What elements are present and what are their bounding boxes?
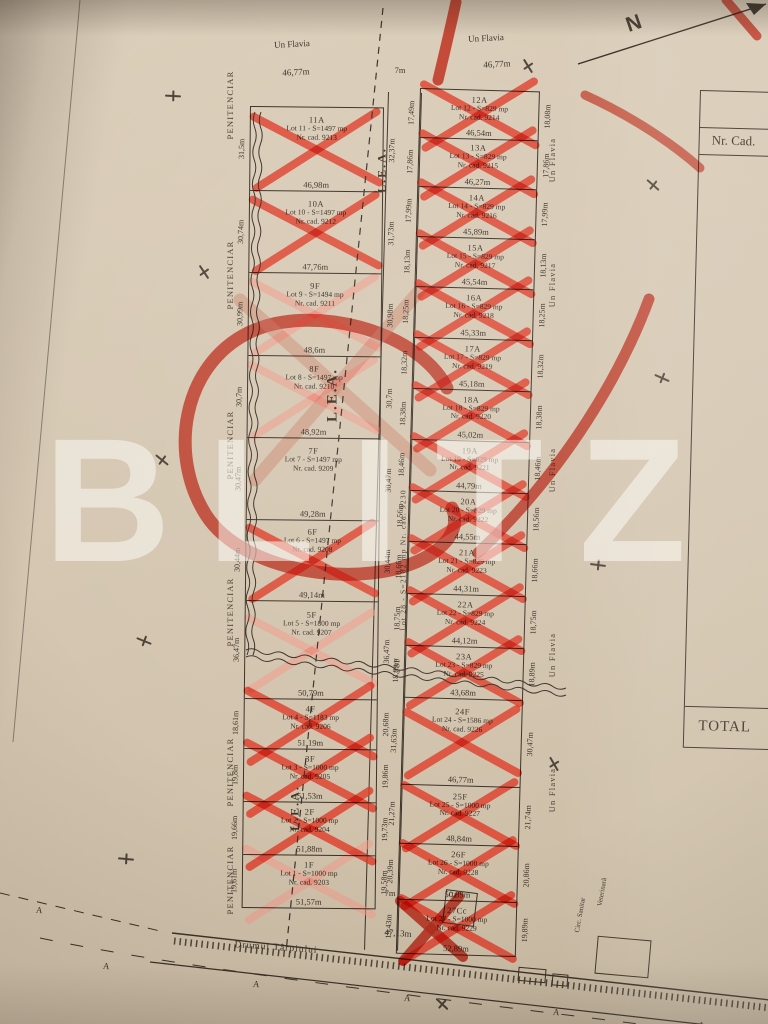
power-line-label: L.E.A. bbox=[325, 368, 342, 422]
street-label-un-flavia: Un Flavia bbox=[274, 38, 310, 50]
lot-cadastral-number: Nr. cad. 9203 bbox=[243, 878, 375, 888]
lot-cadastral-number: Nr. cad. 9208 bbox=[246, 545, 378, 555]
building-veterinary bbox=[594, 936, 651, 979]
lot-side-length-left: 21,27m bbox=[387, 801, 397, 825]
table-body bbox=[685, 155, 768, 709]
lot-side-length-left: 18,61m bbox=[231, 711, 240, 735]
building-c1: C1 bbox=[442, 889, 478, 927]
lot-side-length-right: 31,73m bbox=[386, 221, 395, 245]
lot-cadastral-number: Nr. cad. 9222 bbox=[409, 513, 527, 525]
lot-parcel: 30,99m 9F Lot 9 - S=1494 mp Nr. cad. 921… bbox=[248, 273, 381, 357]
cadastral-side-table: Nr. Cad. TOTAL bbox=[683, 90, 768, 751]
lot-cadastral-number: Nr. cad. 9212 bbox=[250, 217, 382, 227]
lot-frontage-length: 48,6m bbox=[248, 344, 380, 355]
lot-text-block: 14A Lot 14 - S=829 mp Nr. cad. 9216 bbox=[417, 191, 536, 222]
street-label-un-flavia: Un Flavia bbox=[468, 32, 504, 44]
lot-side-length-right: 18,89m bbox=[527, 663, 537, 687]
survey-marker-icon bbox=[194, 262, 214, 282]
building-c1-label: C1 bbox=[448, 891, 457, 900]
lot-parcel: 18,89m 23A Lot 23 - S=829 mp Nr. cad. 92… bbox=[404, 646, 523, 702]
lot-text-block: 15A Lot 15 - S=829 mp Nr. cad. 9217 bbox=[416, 241, 535, 272]
lot-cadastral-number: Nr. cad. 9205 bbox=[244, 772, 376, 782]
lot-parcel: 30,44m 6F Lot 6 - S=1497 mp Nr. cad. 920… bbox=[246, 520, 379, 603]
road-lot-designation: 28F bbox=[393, 657, 402, 673]
lot-cadastral-number: Nr. cad. 9209 bbox=[247, 464, 379, 474]
road-width-label: 7m bbox=[385, 888, 396, 898]
lot-cadastral-number: Nr. cad. 9207 bbox=[245, 628, 377, 638]
lot-side-length-right: 18,75m bbox=[528, 610, 538, 634]
lot-side-length-right: 30,44m bbox=[383, 549, 392, 573]
lot-text-block: 24F Lot 24 - S=1586 mp Nr. cad. 9226 bbox=[403, 705, 522, 736]
lot-text-block: 19A Lot 19 - S=829 mp Nr. cad. 9221 bbox=[410, 443, 529, 474]
lot-text-block: 4F Lot 4 - S=1183 mp Nr. cad. 9206 bbox=[244, 703, 376, 732]
lot-cadastral-number: Nr. cad. 9216 bbox=[417, 210, 535, 222]
lot-cadastral-number: Nr. cad. 9213 bbox=[251, 133, 383, 143]
lot-cadastral-number: Nr. cad. 9220 bbox=[412, 411, 530, 423]
lot-text-block: 9F Lot 9 - S=1494 mp Nr. cad. 9211 bbox=[249, 280, 381, 309]
lot-frontage-length: 48,92m bbox=[248, 426, 380, 437]
survey-marker-icon bbox=[652, 368, 671, 387]
lot-cadastral-number: Nr. cad. 9217 bbox=[416, 260, 534, 272]
lot-text-block: 16A Lot 16 - S=829 mp Nr. cad. 9218 bbox=[415, 291, 534, 322]
road-lot-label: Lot 28 - S=2182 mp Nr. cad. 9230 bbox=[399, 489, 408, 631]
lot-frontage-length: 47,76m bbox=[249, 261, 381, 272]
table-empty-row bbox=[700, 90, 768, 131]
lot-cadastral-number: Nr. cad. 9221 bbox=[410, 462, 528, 474]
lot-side-length-left: 17,99m bbox=[404, 199, 414, 223]
boundary-a-mark: A bbox=[403, 993, 411, 1004]
lot-side-length-left: 19,66m bbox=[230, 816, 239, 840]
lot-cadastral-number: Nr. cad. 9214 bbox=[420, 112, 538, 124]
lot-cadastral-number: Nr. cad. 9223 bbox=[407, 565, 525, 577]
lot-cadastral-number: Nr. cad. 9204 bbox=[243, 825, 375, 835]
lot-cadastral-number: Nr. cad. 9226 bbox=[403, 724, 521, 736]
street-label-penitenciar: PENITENCIAR bbox=[225, 846, 235, 915]
power-line-label: L.E.A. bbox=[375, 147, 390, 193]
survey-marker-icon bbox=[134, 631, 154, 651]
lot-side-length-right: 30,47m bbox=[525, 732, 535, 756]
lot-side-length-left: 30,99m bbox=[235, 302, 244, 326]
lot-cadastral-number: Nr. cad. 9206 bbox=[244, 721, 376, 731]
survey-marker-icon bbox=[115, 848, 137, 870]
frontage-measure: 47,13m bbox=[384, 927, 412, 939]
street-label-penitenciar: PENITENCIAR bbox=[225, 738, 235, 807]
north-arrow bbox=[578, 3, 766, 64]
table-footer-total: TOTAL bbox=[684, 706, 768, 751]
boundary-a-mark: A bbox=[35, 905, 43, 916]
lot-side-length-left: 20,39m bbox=[385, 859, 395, 883]
lot-side-length-right: 18,32m bbox=[535, 354, 545, 378]
lot-side-length-left: 18,38m bbox=[398, 401, 408, 425]
boundary-a-mark: A bbox=[252, 979, 260, 990]
street-label-un-flavia: Un Flavia bbox=[547, 768, 557, 813]
lot-side-length-right: 18,46m bbox=[533, 456, 543, 480]
lot-parcel: 30,47m 7F Lot 7 - S=1497 mp Nr. cad. 920… bbox=[247, 438, 380, 521]
sanitary-circ-label: Circ. Sanitar bbox=[573, 897, 587, 933]
lot-side-length-left: 18,13m bbox=[402, 249, 412, 273]
lot-cadastral-number: Nr. cad. 9215 bbox=[419, 160, 537, 172]
lot-text-block: 21A Lot 21 - S=829 mp Nr. cad. 9223 bbox=[407, 546, 526, 577]
lot-text-block: 25F Lot 25 - S=1000 mp Nr. cad. 9227 bbox=[401, 789, 520, 820]
lot-side-length-right: 18,38m bbox=[534, 405, 544, 429]
north-arrow-n-label: N bbox=[623, 10, 645, 38]
lot-text-block: 26F Lot 26 - S=1000 mp Nr. cad. 9228 bbox=[399, 848, 518, 879]
red-stroke bbox=[726, 0, 757, 36]
lot-text-block: 12A Lot 12 - S=829 mp Nr. cad. 9214 bbox=[420, 93, 539, 124]
lot-side-length-left: 30,74m bbox=[236, 220, 245, 244]
lot-cadastral-number: Nr. cad. 9210 bbox=[248, 382, 380, 392]
lot-frontage-length: 49,28m bbox=[247, 508, 379, 519]
survey-marker-icon bbox=[154, 452, 170, 468]
lot-side-length-right: 30,98m bbox=[385, 304, 394, 328]
lot-side-length-right: 30,47m bbox=[383, 468, 392, 492]
lot-parcel: 31,63m 24F Lot 24 - S=1586 mp Nr. cad. 9… bbox=[402, 698, 522, 788]
lot-text-block: 7F Lot 7 - S=1497 mp Nr. cad. 9209 bbox=[247, 445, 379, 474]
street-label-un-flavia: Un Flavia bbox=[547, 633, 557, 678]
lot-side-length-right: 18,56m bbox=[531, 507, 541, 531]
boundary-a-mark: A bbox=[552, 1007, 560, 1018]
lot-text-block: 23A Lot 23 - S=829 mp Nr. cad. 9225 bbox=[405, 650, 524, 681]
lot-parcel: 36,47m 5F Lot 5 - S=1800 mp Nr. cad. 920… bbox=[245, 601, 378, 700]
lot-side-length-left: 18,32m bbox=[399, 350, 409, 374]
lot-text-block: 1F Lot 1 - S=1000 mp Nr. cad. 9203 bbox=[243, 859, 375, 888]
survey-marker-icon bbox=[433, 995, 450, 1012]
lot-parcel: 30,74m 10A Lot 10 - S=1497 mp Nr. cad. 9… bbox=[249, 191, 382, 275]
frontage-measure: 46,77m bbox=[282, 66, 310, 77]
survey-marker-icon bbox=[162, 85, 184, 107]
lot-frontage-length: 52,89m bbox=[397, 942, 515, 955]
boundary-a-mark: A bbox=[697, 1020, 705, 1024]
street-label-penitenciar: PENITENCIAR bbox=[225, 241, 235, 310]
lot-side-length-right: 17,99m bbox=[540, 203, 550, 227]
lot-text-block: 6F Lot 6 - S=1497 mp Nr. cad. 9208 bbox=[246, 526, 378, 555]
lot-side-length-left: 30,7m bbox=[234, 387, 243, 407]
lot-side-length-left: 17,49m bbox=[406, 100, 416, 124]
road-width-label: 7m bbox=[395, 65, 406, 75]
lot-side-length-right: 18,66m bbox=[530, 559, 540, 583]
street-label-penitenciar: PENITENCIAR bbox=[225, 578, 235, 647]
lot-text-block: 8F Lot 8 - S=1497 mp Nr. cad. 9210 bbox=[248, 363, 380, 392]
right-lot-column: 17,49m 12A Lot 12 - S=829 mp Nr. cad. 92… bbox=[396, 88, 540, 957]
survey-marker-icon bbox=[587, 554, 609, 576]
red-stroke bbox=[438, 2, 456, 80]
street-label-un-flavia: Un Flavia bbox=[547, 448, 557, 493]
lot-parcel: 31,5m 11A Lot 11 - S=1497 mp Nr. cad. 92… bbox=[250, 107, 383, 193]
lot-parcel: 30,7m 8F Lot 8 - S=1497 mp Nr. cad. 9210… bbox=[248, 356, 381, 439]
lot-cadastral-number: Nr. cad. 9227 bbox=[401, 808, 519, 820]
survey-marker-icon bbox=[518, 56, 539, 77]
lot-text-block: 20A Lot 20 - S=829 mp Nr. cad. 9222 bbox=[409, 495, 528, 526]
lot-side-length-right: 18,08m bbox=[542, 104, 552, 128]
lot-text-block: 11A Lot 11 - S=1497 mp Nr. cad. 9213 bbox=[251, 114, 383, 143]
lot-side-length-left: 18,46m bbox=[397, 452, 407, 476]
lot-text-block: 13A Lot 13 - S=829 mp Nr. cad. 9215 bbox=[419, 141, 538, 172]
building-small bbox=[552, 973, 569, 986]
lot-side-length-right: 21,74m bbox=[523, 805, 533, 829]
lot-frontage-length: 51,57m bbox=[243, 896, 375, 907]
lot-side-length-left: 31,63m bbox=[389, 728, 399, 752]
building-small bbox=[517, 967, 546, 983]
street-label-penitenciar: PENITENCIAR bbox=[225, 71, 235, 140]
lot-text-block: 5F Lot 5 - S=1800 mp Nr. cad. 9207 bbox=[245, 609, 377, 638]
lot-frontage-length: 49,14m bbox=[246, 589, 378, 600]
street-label-penitenciar: PENITENCIAR bbox=[225, 411, 235, 480]
lot-side-length-left: 31,5m bbox=[237, 138, 246, 158]
road-name-label: Drumul Târpiului bbox=[234, 940, 318, 956]
frontage-measure: 46,77m bbox=[483, 58, 511, 69]
lot-side-length-right: 36,47m bbox=[382, 639, 391, 663]
sheet-frame-line bbox=[13, 0, 80, 742]
lot-side-length-left: 17,86m bbox=[405, 149, 415, 173]
veterinary-label: Veterinară bbox=[596, 877, 609, 907]
lot-text-block: 22A Lot 22 - S=829 mp Nr. cad. 9224 bbox=[406, 598, 525, 629]
lot-side-length-right: 19,86m bbox=[380, 764, 389, 788]
lot-frontage-length: 46,98m bbox=[250, 179, 382, 190]
survey-marker-icon bbox=[645, 177, 662, 194]
lot-cadastral-number: Nr. cad. 9218 bbox=[415, 310, 533, 322]
lot-cadastral-number: Nr. cad. 9228 bbox=[399, 867, 517, 879]
lot-text-block: 10A Lot 10 - S=1497 mp Nr. cad. 9212 bbox=[250, 198, 382, 227]
lot-side-length-right: 20,86m bbox=[521, 863, 531, 887]
power-line-label: L.E.A. bbox=[288, 785, 303, 831]
left-lot-column: 31,5m 11A Lot 11 - S=1497 mp Nr. cad. 92… bbox=[242, 106, 384, 909]
red-stroke bbox=[585, 95, 700, 168]
street-label-un-flavia: Un Flavia bbox=[547, 138, 557, 183]
lot-text-block: 18A Lot 18 - S=829 mp Nr. cad. 9220 bbox=[412, 392, 531, 423]
lot-cadastral-number: Nr. cad. 9224 bbox=[406, 617, 524, 629]
lot-side-length-right: 30,7m bbox=[384, 388, 393, 408]
lot-text-block: 2F Lot 2 - S=1000 mp Nr. cad. 9204 bbox=[243, 806, 375, 835]
lot-side-length-left: 30,44m bbox=[233, 548, 242, 572]
lot-cadastral-number: Nr. cad. 9219 bbox=[413, 361, 531, 373]
lot-side-length-right: 18,25m bbox=[537, 303, 547, 327]
lot-side-length-left: 18,25m bbox=[401, 299, 411, 323]
cadastral-plan-photo: Un Flavia Un Flavia 46,77m 46,77m 7m N 3… bbox=[0, 0, 768, 1024]
lot-text-block: 17A Lot 17 - S=829 mp Nr. cad. 9219 bbox=[413, 342, 532, 373]
lot-cadastral-number: Nr. cad. 9225 bbox=[405, 669, 523, 681]
lot-cadastral-number: Nr. cad. 9211 bbox=[249, 299, 381, 309]
street-label-un-flavia: Un Flavia bbox=[547, 263, 557, 308]
boundary-a-mark: A bbox=[102, 961, 110, 972]
lot-parcel: 21,27m 25F Lot 25 - S=1000 mp Nr. cad. 9… bbox=[400, 785, 520, 847]
lot-side-length-right: 19,89m bbox=[520, 918, 530, 942]
lot-frontage-length: 43,68m bbox=[404, 686, 522, 699]
table-header-nr-cad: Nr. Cad. bbox=[699, 128, 768, 158]
